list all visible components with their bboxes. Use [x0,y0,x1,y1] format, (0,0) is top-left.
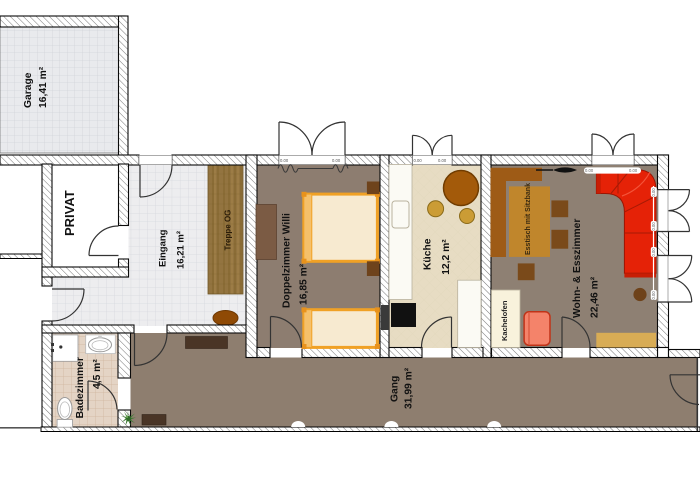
svg-text:16,21 m²: 16,21 m² [176,231,187,269]
svg-text:Gang: Gang [390,376,401,402]
svg-text:4,5 m²: 4,5 m² [92,359,103,389]
svg-text:0.00: 0.00 [651,291,656,300]
svg-text:0.00: 0.00 [651,188,656,197]
svg-text:22,46 m²: 22,46 m² [590,276,601,318]
svg-text:Treppe OG: Treppe OG [224,210,233,251]
svg-text:0.00: 0.00 [414,158,423,163]
svg-text:Wohn- & Esszimmer: Wohn- & Esszimmer [572,219,583,318]
svg-text:Doppelzimmer Willi: Doppelzimmer Willi [282,213,293,308]
svg-text:0.00: 0.00 [280,158,289,163]
svg-text:31,99 m²: 31,99 m² [404,367,415,409]
svg-text:16,85 m²: 16,85 m² [299,263,310,305]
svg-text:Küche: Küche [423,238,434,270]
svg-text:0.00: 0.00 [651,248,656,257]
svg-text:Eingang: Eingang [158,229,169,267]
svg-text:0.00: 0.00 [651,222,656,231]
svg-text:16,41 m²: 16,41 m² [38,66,49,108]
svg-text:0.00: 0.00 [332,158,341,163]
svg-text:12,2 m²: 12,2 m² [441,239,452,275]
svg-text:PRIVAT: PRIVAT [62,190,77,236]
svg-text:Garage: Garage [23,72,34,108]
svg-text:0.00: 0.00 [438,158,447,163]
svg-text:Esstisch mit Sitzbank: Esstisch mit Sitzbank [525,183,532,255]
svg-text:Kachelofen: Kachelofen [500,300,509,341]
svg-text:Badezimmer: Badezimmer [75,357,86,418]
svg-text:0.00: 0.00 [585,168,594,173]
svg-text:0.00: 0.00 [629,168,638,173]
